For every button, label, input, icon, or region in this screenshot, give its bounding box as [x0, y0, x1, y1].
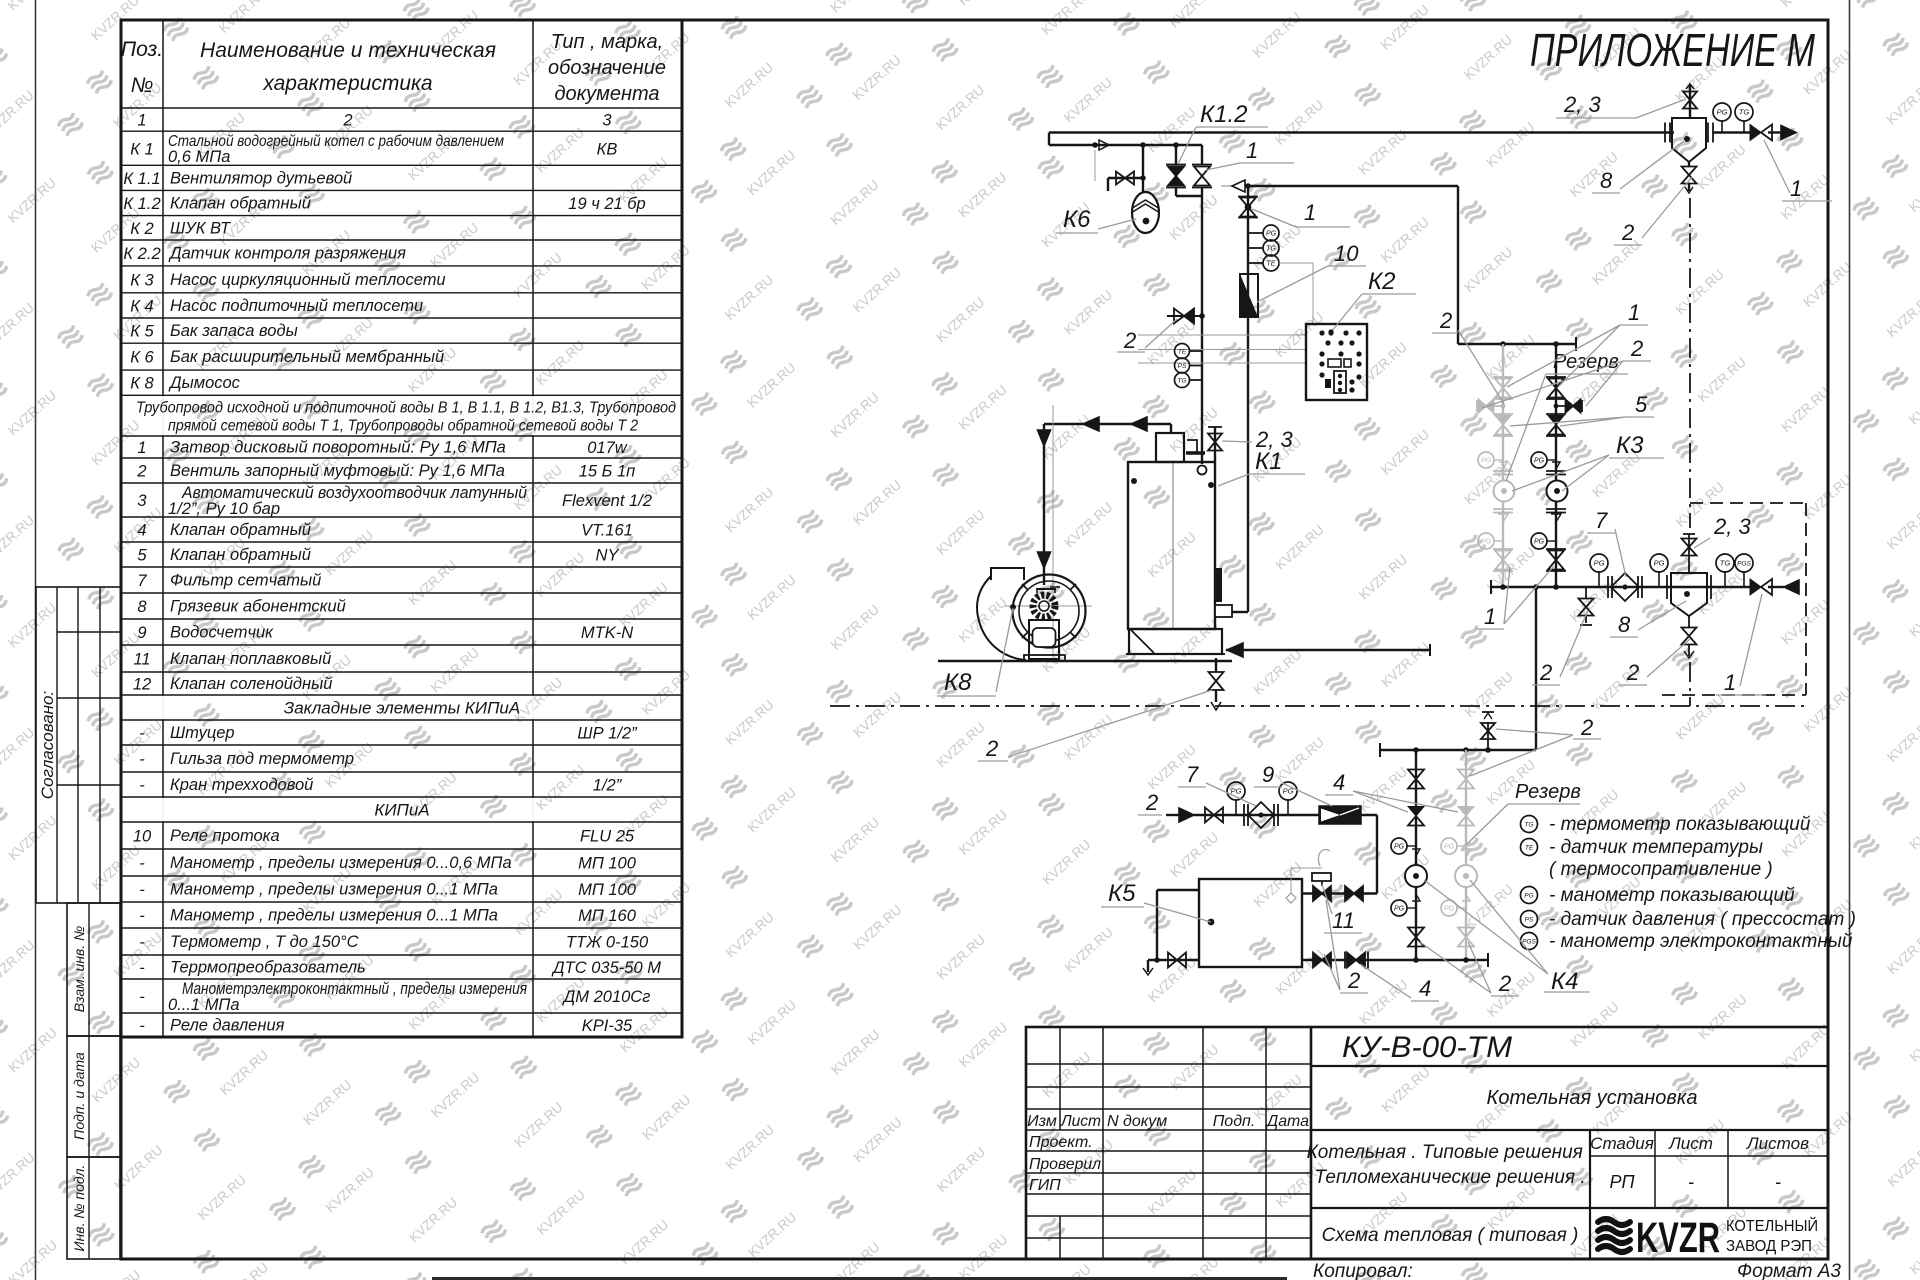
svg-text:Лист: Лист — [1668, 1134, 1713, 1153]
svg-text:7: 7 — [1186, 762, 1199, 787]
svg-text:PG: PG — [1231, 787, 1242, 796]
svg-text:Террмопреобразователь: Террмопреобразователь — [170, 959, 366, 977]
svg-text:Клапан обратный: Клапан обратный — [170, 195, 311, 213]
svg-text:ДМ 2010Сг: ДМ 2010Сг — [562, 988, 651, 1006]
svg-text:PG: PG — [1481, 539, 1492, 546]
svg-text:документа: документа — [554, 83, 659, 105]
svg-text:1: 1 — [137, 112, 146, 130]
svg-text:( термосопративление ): ( термосопративление ) — [1549, 859, 1773, 880]
svg-text:PG: PG — [1481, 458, 1492, 465]
svg-text:7: 7 — [137, 572, 147, 590]
svg-text:- манометр показывающий: - манометр показывающий — [1549, 885, 1795, 906]
svg-text:7: 7 — [1595, 508, 1608, 533]
svg-text:1: 1 — [137, 439, 146, 457]
svg-text:К 6: К 6 — [130, 349, 154, 367]
svg-text:PG: PG — [1654, 559, 1665, 568]
svg-text:Трубопровод исходной и подпито: Трубопровод исходной и подпиточной воды … — [136, 399, 676, 416]
svg-text:Резерв: Резерв — [1553, 351, 1619, 373]
svg-text:2, 3: 2, 3 — [1255, 427, 1293, 452]
svg-text:5: 5 — [1635, 392, 1648, 417]
svg-text:К2: К2 — [1368, 268, 1396, 295]
svg-text:VT.161: VT.161 — [581, 522, 633, 540]
svg-text:N докум: N докум — [1107, 1113, 1167, 1130]
svg-text:обозначение: обозначение — [548, 57, 666, 79]
svg-text:КИПиА: КИПиА — [374, 801, 429, 820]
svg-text:NY: NY — [596, 547, 620, 565]
svg-text:TG: TG — [1524, 822, 1533, 829]
svg-text:- датчик температуры: - датчик температуры — [1549, 837, 1763, 858]
svg-text:ТТЖ 0-150: ТТЖ 0-150 — [566, 934, 649, 952]
svg-text:2: 2 — [1145, 790, 1158, 815]
svg-text:Клапан соленойдный: Клапан соленойдный — [170, 675, 332, 693]
svg-text:Бак расширительный мембранный: Бак расширительный мембранный — [170, 348, 444, 366]
svg-text:10: 10 — [1334, 241, 1359, 266]
svg-text:К8: К8 — [944, 669, 972, 696]
svg-text:Тепломеханические решения .: Тепломеханические решения . — [1314, 1167, 1585, 1188]
svg-text:-: - — [139, 959, 145, 977]
svg-text:2: 2 — [1621, 220, 1634, 245]
svg-text:9: 9 — [1262, 762, 1274, 787]
svg-text:Клапан поплавковый: Клапан поплавковый — [170, 650, 331, 668]
svg-text:-: - — [139, 777, 145, 795]
svg-text:PG: PG — [1266, 231, 1277, 238]
svg-text:15 Б 1п: 15 Б 1п — [579, 463, 636, 481]
svg-text:Копировал:: Копировал: — [1313, 1261, 1413, 1280]
svg-text:Формат А3: Формат А3 — [1737, 1261, 1841, 1280]
svg-text:1: 1 — [1304, 200, 1316, 225]
svg-text:11: 11 — [133, 651, 150, 669]
svg-text:PG: PG — [1444, 844, 1455, 851]
svg-text:9: 9 — [137, 624, 146, 642]
svg-text:TG: TG — [1720, 559, 1731, 568]
svg-text:Взам. инв. №: Взам. инв. № — [71, 926, 87, 1013]
svg-text:Водосчетчик: Водосчетчик — [170, 624, 274, 642]
svg-text:1: 1 — [1724, 670, 1736, 695]
svg-text:-: - — [139, 751, 145, 769]
svg-text:К 3: К 3 — [130, 271, 154, 289]
svg-text:- манометр электроконтактный: - манометр электроконтактный — [1549, 931, 1853, 952]
svg-text:Грязевик абонентский: Грязевик абонентский — [170, 598, 346, 616]
svg-text:-: - — [139, 725, 145, 743]
svg-text:Котельная установка: Котельная установка — [1487, 1087, 1698, 1109]
svg-text:ГИП: ГИП — [1029, 1177, 1061, 1194]
svg-text:Гильза под термометр: Гильза под термометр — [170, 750, 354, 768]
svg-text:TG: TG — [1177, 378, 1186, 385]
svg-text:К 5: К 5 — [130, 323, 154, 341]
svg-text:1: 1 — [1790, 176, 1802, 201]
svg-text:К1.2: К1.2 — [1200, 101, 1248, 128]
svg-text:Насос циркуляционный теплосети: Насос циркуляционный теплосети — [170, 271, 446, 289]
svg-text:2: 2 — [136, 463, 146, 481]
svg-text:017w: 017w — [587, 439, 628, 457]
svg-text:Проверил: Проверил — [1029, 1156, 1101, 1173]
svg-text:1/2”, Ру 10 бар: 1/2”, Ру 10 бар — [168, 500, 280, 518]
svg-text:3: 3 — [602, 112, 612, 130]
svg-text:ШУК ВТ: ШУК ВТ — [170, 219, 232, 237]
svg-text:Манометр , пределы измерения: Манометр , пределы измерения 0...0,6 МПа — [170, 854, 512, 872]
svg-text:1: 1 — [1484, 604, 1496, 629]
svg-text:TE: TE — [1267, 261, 1276, 268]
svg-text:2, 3: 2, 3 — [1713, 514, 1751, 539]
svg-text:РП: РП — [1609, 1172, 1635, 1192]
svg-text:К5: К5 — [1108, 880, 1136, 907]
svg-text:TG: TG — [1739, 108, 1750, 117]
svg-text:Котельная . Типовые решения .: Котельная . Типовые решения . — [1307, 1142, 1594, 1163]
svg-text:К6: К6 — [1063, 206, 1091, 233]
svg-text:Вентилятор дутьевой: Вентилятор дутьевой — [170, 169, 352, 187]
svg-text:Клапан обратный: Клапан обратный — [170, 546, 311, 564]
svg-text:2: 2 — [1498, 971, 1511, 996]
svg-text:ДТС 035-50 М: ДТС 035-50 М — [551, 959, 661, 977]
svg-text:4: 4 — [1419, 976, 1431, 1001]
svg-text:11: 11 — [1332, 908, 1355, 933]
svg-text:МП 100: МП 100 — [578, 855, 637, 873]
svg-text:- датчик давления ( прессост: - датчик давления ( прессостат ) — [1549, 909, 1856, 930]
svg-text:-: - — [139, 988, 145, 1006]
svg-text:ПРИЛОЖЕНИЕ М: ПРИЛОЖЕНИЕ М — [1530, 24, 1816, 76]
svg-text:Закладные элементы КИПиА: Закладные элементы КИПиА — [284, 699, 520, 718]
svg-text:-: - — [1775, 1172, 1781, 1192]
svg-text:KPI-35: KPI-35 — [582, 1017, 633, 1035]
svg-text:Инв. № подл.: Инв. № подл. — [71, 1165, 87, 1252]
svg-text:К 1.2: К 1.2 — [123, 195, 160, 213]
svg-text:Дата: Дата — [1265, 1113, 1309, 1130]
svg-text:Тип , марка,: Тип , марка, — [551, 31, 663, 53]
svg-text:ШР 1/2”: ШР 1/2” — [577, 725, 638, 743]
svg-text:1: 1 — [1628, 300, 1640, 325]
svg-text:PS: PS — [1525, 917, 1534, 924]
svg-text:№: № — [131, 74, 154, 97]
svg-text:КУ-В-00-ТМ: КУ-В-00-ТМ — [1342, 1031, 1512, 1064]
svg-text:10: 10 — [133, 828, 152, 846]
svg-text:PS: PS — [1178, 363, 1187, 370]
svg-text:КВ: КВ — [597, 140, 618, 158]
svg-text:5: 5 — [137, 547, 147, 565]
svg-text:Манометр , пределы измерения: Манометр , пределы измерения 0...1 МПа — [170, 881, 498, 899]
svg-text:19 ч 21 бр: 19 ч 21 бр — [568, 195, 645, 213]
svg-text:Лист: Лист — [1060, 1113, 1101, 1130]
svg-text:2: 2 — [342, 112, 352, 130]
svg-text:характеристика: характеристика — [262, 72, 432, 95]
svg-text:8: 8 — [1618, 612, 1631, 637]
svg-text:0...1 МПа: 0...1 МПа — [168, 996, 240, 1014]
svg-text:Затвор дисковый поворотный: Р: Затвор дисковый поворотный: Ру 1,6 МПа — [170, 439, 506, 457]
svg-text:0,6 МПа: 0,6 МПа — [168, 148, 230, 166]
svg-text:2: 2 — [1439, 308, 1452, 333]
svg-text:PG: PG — [1594, 559, 1605, 568]
svg-text:Схема тепловая ( типовая ): Схема тепловая ( типовая ) — [1322, 1225, 1579, 1246]
svg-text:-: - — [1688, 1172, 1694, 1192]
svg-text:Термометр , Т до 150°С: Термометр , Т до 150°С — [170, 933, 359, 951]
svg-text:-: - — [139, 907, 145, 925]
svg-text:Flexvent 1/2: Flexvent 1/2 — [562, 492, 652, 510]
svg-text:Фильтр сетчатый: Фильтр сетчатый — [170, 572, 321, 590]
svg-text:ЗАВОД РЭП: ЗАВОД РЭП — [1726, 1238, 1812, 1255]
svg-text:Вентиль запорный муфтовый: Ру: Вентиль запорный муфтовый: Ру 1,6 МПа — [170, 462, 505, 480]
svg-text:2: 2 — [1347, 968, 1360, 993]
svg-text:PG: PG — [1444, 906, 1455, 913]
svg-text:Изм: Изм — [1027, 1113, 1057, 1130]
svg-text:Реле протока: Реле протока — [170, 827, 280, 845]
svg-text:К3: К3 — [1616, 432, 1644, 459]
svg-text:PG: PG — [1534, 539, 1545, 546]
svg-text:МП 100: МП 100 — [578, 881, 637, 899]
svg-text:К 4: К 4 — [130, 297, 154, 315]
svg-text:Подп. и дата: Подп. и дата — [71, 1052, 87, 1140]
svg-text:8: 8 — [1600, 168, 1613, 193]
svg-text:К 1.1: К 1.1 — [123, 170, 160, 188]
svg-text:Стадия: Стадия — [1590, 1134, 1654, 1153]
svg-text:3: 3 — [137, 492, 147, 510]
svg-text:1: 1 — [1246, 138, 1258, 163]
svg-text:2: 2 — [1580, 715, 1593, 740]
svg-text:8: 8 — [137, 598, 147, 616]
svg-text:PG: PG — [1534, 458, 1545, 465]
svg-text:-: - — [139, 855, 145, 873]
svg-text:PG: PG — [1717, 108, 1728, 117]
svg-text:Согласовано:: Согласовано: — [38, 691, 57, 800]
svg-text:КОТЕЛЬНЫЙ: КОТЕЛЬНЫЙ — [1726, 1217, 1818, 1235]
svg-text:Наименование и техническая: Наименование и техническая — [200, 39, 496, 62]
svg-text:1/2”: 1/2” — [593, 777, 623, 795]
svg-text:PG: PG — [1524, 893, 1533, 900]
svg-text:Дымосос: Дымосос — [168, 374, 241, 392]
svg-text:TG: TG — [1266, 246, 1276, 253]
svg-text:12: 12 — [133, 676, 151, 694]
svg-text:МП 160: МП 160 — [578, 907, 637, 925]
svg-text:PGS: PGS — [1737, 561, 1751, 568]
svg-text:Датчик контроля разряжения: Датчик контроля разряжения — [168, 244, 406, 262]
svg-text:PG: PG — [1394, 844, 1405, 851]
svg-text:4: 4 — [137, 522, 146, 540]
svg-text:2: 2 — [1630, 336, 1643, 361]
svg-text:FLU 25: FLU 25 — [580, 828, 635, 846]
svg-text:-: - — [139, 934, 145, 952]
svg-text:Бак запаса воды: Бак запаса воды — [170, 322, 298, 340]
svg-text:Листов: Листов — [1746, 1134, 1809, 1153]
svg-text:- термометр показывающий: - термометр показывающий — [1549, 814, 1811, 835]
svg-text:2, 3: 2, 3 — [1563, 92, 1601, 117]
svg-text:К 2: К 2 — [130, 220, 154, 238]
svg-text:Резерв: Резерв — [1515, 781, 1581, 803]
svg-text:Насос подпиточный теплосети: Насос подпиточный теплосети — [170, 297, 423, 315]
svg-text:Штуцер: Штуцер — [170, 724, 235, 742]
svg-text:KVZR: KVZR — [1636, 1214, 1720, 1262]
svg-text:2: 2 — [1626, 660, 1639, 685]
svg-text:Реле давления: Реле давления — [170, 1017, 285, 1035]
svg-text:-: - — [139, 881, 145, 899]
svg-text:TE: TE — [1525, 845, 1534, 852]
svg-text:Проект.: Проект. — [1029, 1134, 1093, 1151]
svg-text:PG: PG — [1394, 906, 1405, 913]
svg-text:Кран трехходовой: Кран трехходовой — [170, 776, 313, 794]
svg-text:2: 2 — [1539, 660, 1552, 685]
svg-text:Клапан обратный: Клапан обратный — [170, 521, 311, 539]
svg-text:TE: TE — [1178, 349, 1187, 356]
svg-text:2: 2 — [985, 736, 998, 761]
svg-text:4: 4 — [1333, 770, 1345, 795]
svg-text:MTK-N: MTK-N — [581, 624, 633, 642]
svg-text:Подп.: Подп. — [1213, 1113, 1256, 1130]
svg-text:К1: К1 — [1255, 448, 1283, 475]
svg-text:прямой сетевой воды Т 1, Труб: прямой сетевой воды Т 1, Трубопроводы об… — [168, 417, 638, 434]
svg-text:К 1: К 1 — [130, 140, 154, 158]
svg-text:К 8: К 8 — [130, 375, 154, 393]
svg-text:Поз.: Поз. — [121, 38, 163, 61]
svg-text:Манометр , пределы измерения: Манометр , пределы измерения 0...1 МПа — [170, 907, 498, 925]
svg-text:К 2.2: К 2.2 — [123, 245, 160, 263]
svg-text:2: 2 — [1123, 328, 1136, 353]
svg-text:К4: К4 — [1551, 968, 1579, 995]
svg-text:-: - — [139, 1017, 145, 1035]
